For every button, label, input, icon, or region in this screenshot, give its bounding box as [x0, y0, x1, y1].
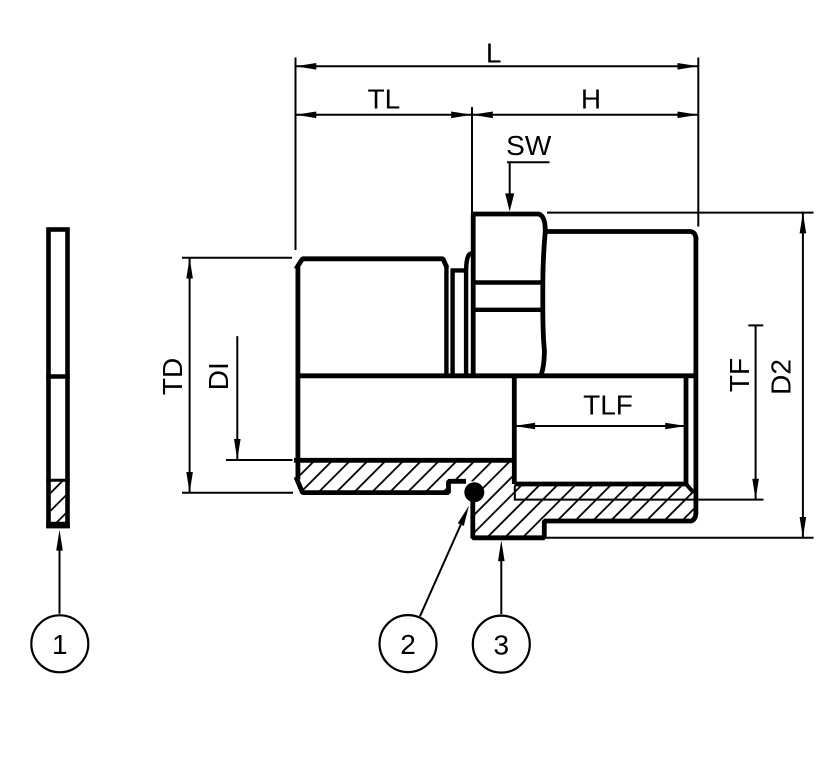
svg-text:L: L — [486, 38, 502, 69]
svg-text:D2: D2 — [766, 359, 797, 395]
svg-text:SW: SW — [506, 130, 552, 161]
svg-text:2: 2 — [400, 629, 416, 660]
svg-text:TF: TF — [724, 358, 755, 392]
svg-text:H: H — [581, 84, 601, 115]
svg-text:1: 1 — [52, 629, 68, 660]
svg-text:3: 3 — [494, 629, 510, 660]
svg-text:TD: TD — [157, 358, 188, 395]
svg-text:TLF: TLF — [583, 390, 633, 421]
svg-text:TL: TL — [368, 84, 401, 115]
svg-text:DI: DI — [203, 362, 234, 390]
